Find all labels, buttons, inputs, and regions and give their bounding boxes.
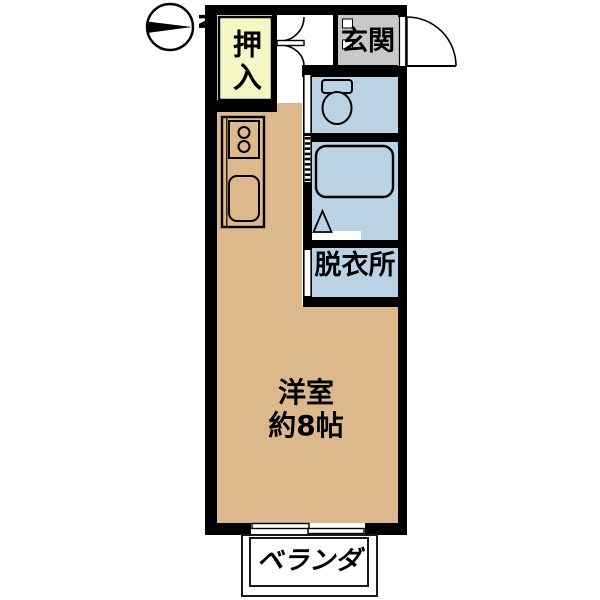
western-room-floor	[216, 103, 302, 523]
sliding-door-panel-right	[308, 529, 364, 534]
passage-floor	[277, 65, 302, 103]
entrance-label: 玄関	[336, 26, 400, 57]
entrance-swing-door	[407, 17, 456, 66]
western-room-size: 約8帖	[228, 409, 384, 442]
wall-closet-right	[272, 15, 277, 105]
compass-north-label: N	[194, 13, 218, 30]
wall-left	[205, 5, 217, 535]
veranda-label: ベランダ	[244, 547, 374, 577]
wall-dressing-bottom	[303, 297, 407, 307]
wall-corridor-bottom	[302, 65, 407, 77]
veranda-sliding-door	[251, 523, 365, 535]
toilet-icon	[322, 80, 352, 124]
western-room-label: 洋室 約8帖	[228, 376, 384, 442]
closet-door-leaves	[277, 41, 304, 46]
dressing-room-label: 脱衣所	[307, 250, 403, 281]
bathroom-floor	[306, 136, 398, 243]
closet-label: 押入	[228, 29, 261, 95]
wall-toilet-bath-divider	[303, 133, 398, 142]
wall-closet-bottom	[207, 100, 277, 112]
sliding-door-panel-left	[252, 524, 309, 529]
floor-plan-drawing: N	[0, 0, 600, 600]
toilet-bowl	[323, 92, 352, 124]
wall-bath-dressing-divider	[303, 240, 398, 248]
toilet-door-opening	[305, 75, 311, 133]
toilet-room-floor	[306, 69, 398, 136]
western-room-name: 洋室	[228, 376, 384, 409]
entrance-door-arc	[407, 17, 456, 66]
floor-plan-page: N 押入 玄関 脱衣所 洋室 約8帖 ベランダ	[0, 0, 600, 600]
wall-top	[205, 5, 407, 15]
